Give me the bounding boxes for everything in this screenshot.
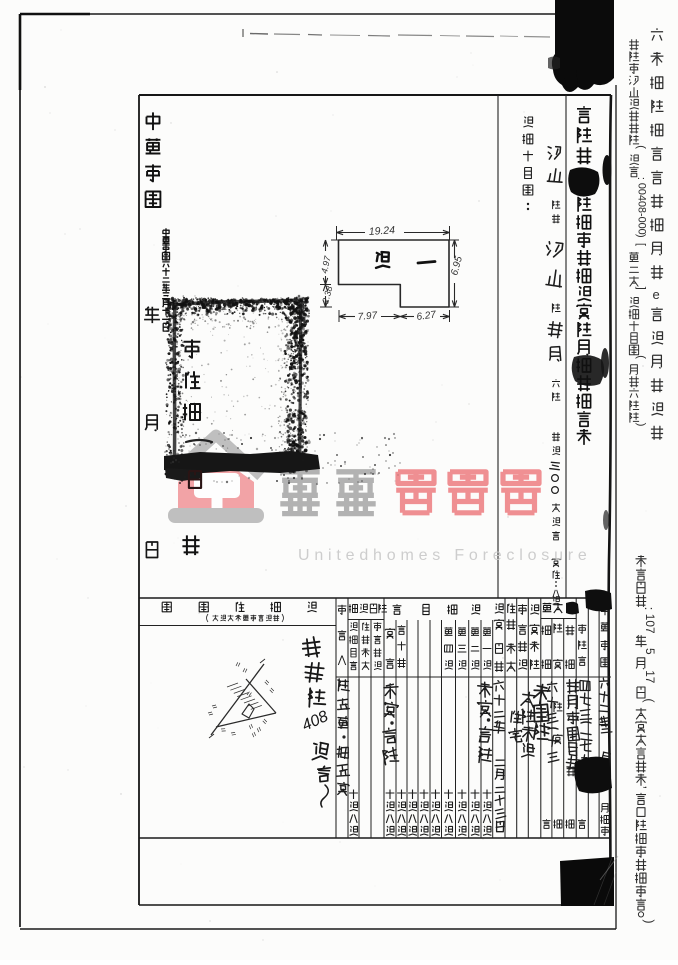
- svg-text:00408-000: 00408-000: [635, 183, 647, 235]
- svg-text:19.24: 19.24: [368, 224, 395, 238]
- svg-text:5: 5: [643, 648, 657, 655]
- svg-text:e: e: [653, 287, 660, 302]
- svg-text:): ): [635, 423, 647, 427]
- svg-text:7.97: 7.97: [357, 310, 378, 323]
- svg-text::: :: [635, 177, 647, 180]
- svg-text:Unitedhomes Foreclosure: Unitedhomes Foreclosure: [298, 547, 592, 564]
- svg-text::: :: [642, 607, 656, 610]
- svg-text:(: (: [635, 355, 647, 359]
- svg-text:107: 107: [643, 614, 657, 634]
- svg-text:]: ]: [635, 287, 647, 290]
- svg-text:(: (: [635, 145, 647, 149]
- svg-text:,: ,: [642, 786, 656, 789]
- svg-text:): ): [635, 234, 647, 238]
- svg-text:17: 17: [643, 670, 657, 683]
- svg-text:): ): [642, 919, 656, 923]
